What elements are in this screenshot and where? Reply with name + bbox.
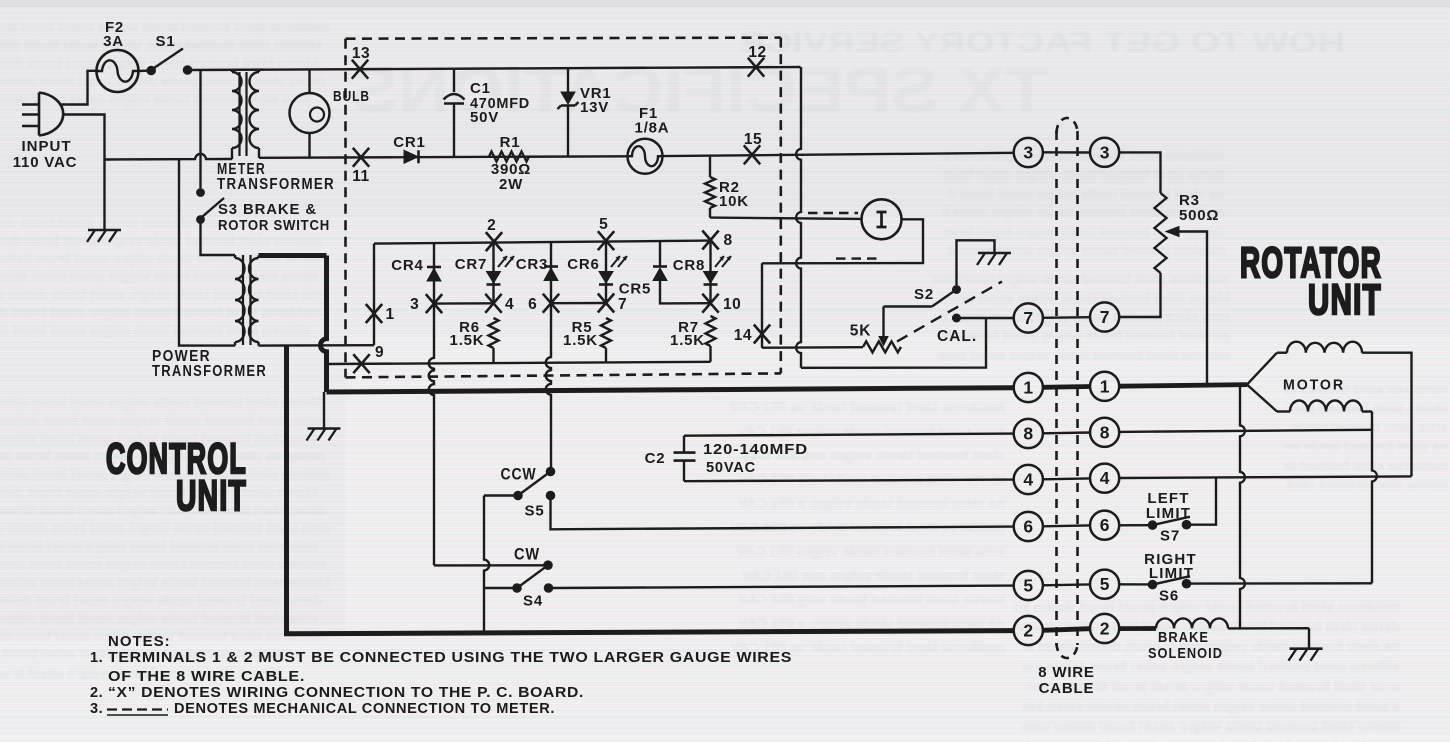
svg-text:a slent bromed tande velgro an: a slent bromed tande velgro anset brunt … bbox=[1023, 698, 1400, 714]
svg-text:CR3: CR3 bbox=[516, 256, 548, 273]
svg-text:8 WIRE: 8 WIRE bbox=[1038, 664, 1094, 681]
svg-text:UNIT: UNIT bbox=[1308, 276, 1382, 324]
svg-text:LIMIT: LIMIT bbox=[1149, 565, 1194, 582]
svg-text:6: 6 bbox=[1023, 517, 1033, 537]
svg-text:S6: S6 bbox=[1159, 588, 1179, 605]
svg-text:50VAC: 50VAC bbox=[706, 459, 756, 476]
svg-text:INPUT: INPUT bbox=[22, 138, 72, 155]
svg-text:erna slent bromed tande velgro: erna slent bromed tande velgro anset bru… bbox=[0, 611, 318, 626]
svg-text:erna slent bromed tande velgro: erna slent bromed tande velgro 051 CAV bbox=[736, 543, 1005, 559]
svg-text:melderna slent bromed tande ve: melderna slent bromed tande velgro anset… bbox=[0, 305, 322, 320]
svg-text:8: 8 bbox=[1100, 422, 1110, 442]
svg-text:CW: CW bbox=[514, 546, 540, 564]
svg-text:erna slent bromed tande velgro: erna slent bromed tande velgro 051 CAV bbox=[736, 423, 1005, 439]
svg-text:melderna slent bromed ta: melderna slent bromed ta bbox=[1283, 458, 1448, 473]
svg-text:CABLE: CABLE bbox=[1039, 680, 1095, 697]
svg-text:derna slent bromed tande velgr: derna slent bromed tande velgro anset br… bbox=[943, 167, 1225, 182]
svg-text:C2: C2 bbox=[645, 450, 666, 467]
svg-text:1.5K: 1.5K bbox=[563, 332, 598, 349]
svg-text:110 VAC: 110 VAC bbox=[13, 154, 78, 171]
svg-text:na slent bromed tande velgro a: na slent bromed tande velgro anset brunt… bbox=[947, 243, 1225, 258]
svg-text:derna slent bromed tande velgr: derna slent bromed tande velgro anset br… bbox=[0, 413, 330, 428]
svg-text:melderna slent bromed tande ve: melderna slent bromed tande velgro anset… bbox=[933, 272, 1230, 287]
svg-text:8: 8 bbox=[1023, 424, 1033, 444]
svg-text:CR6: CR6 bbox=[567, 256, 599, 273]
svg-text:14: 14 bbox=[734, 327, 752, 344]
svg-text:7: 7 bbox=[1100, 307, 1110, 327]
svg-text:1.5K: 1.5K bbox=[450, 332, 485, 349]
svg-text:CCW: CCW bbox=[501, 466, 537, 484]
svg-text:derna slent bromed tande velgr: derna slent bromed tande velgro anset br… bbox=[0, 503, 326, 518]
svg-text:DENOTES MECHANICAL CONNECTIO: DENOTES MECHANICAL CONNECTION TO METER. bbox=[174, 701, 555, 717]
svg-text:slent bromed tande velgro ans: slent bromed tande velgro ans 051 CAV bbox=[742, 567, 1005, 583]
svg-text:1: 1 bbox=[1023, 378, 1033, 398]
svg-text:4: 4 bbox=[1100, 468, 1110, 488]
svg-text:elderna slent bromed tande vel: elderna slent bromed tande velgro anset … bbox=[0, 233, 322, 248]
svg-text:na slent bromed tande velgro a: na slent bromed tande velgro anset brunt… bbox=[941, 329, 1230, 344]
svg-text:5: 5 bbox=[1023, 576, 1033, 596]
svg-text:3: 3 bbox=[1100, 142, 1110, 162]
svg-text:S3 BRAKE &: S3 BRAKE & bbox=[218, 201, 317, 218]
svg-text:9: 9 bbox=[375, 344, 385, 361]
svg-text:6: 6 bbox=[528, 296, 538, 313]
svg-text:2W: 2W bbox=[499, 176, 523, 193]
svg-text:2: 2 bbox=[1023, 621, 1033, 641]
svg-text:lderna slent bromed tand: lderna slent bromed tand bbox=[1287, 477, 1448, 492]
svg-text:NOTES:: NOTES: bbox=[108, 633, 171, 650]
svg-text:lderna slent bromed tande velg: lderna slent bromed tande velgro anset b… bbox=[0, 395, 322, 410]
svg-text:TX SPECIFICATIONS: TX SPECIFICATIONS bbox=[351, 54, 1048, 126]
svg-text:1: 1 bbox=[1100, 376, 1110, 396]
svg-text:S1: S1 bbox=[156, 33, 176, 50]
svg-text:rna slent bromed tande velgro: rna slent bromed tande velgro anset brun… bbox=[1021, 738, 1400, 742]
svg-text:melderna slent bromed tande ve: melderna slent bromed tande velgro anset… bbox=[941, 148, 1225, 163]
svg-text:derna slent bromed tande velgr: derna slent bromed tande velgro anset br… bbox=[0, 269, 318, 284]
svg-text:CR8: CR8 bbox=[673, 257, 705, 274]
svg-text:BULB: BULB bbox=[333, 88, 370, 105]
svg-text:melderna slent bromed tande ve: melderna slent bromed tande ve 051 CAV bbox=[730, 399, 1005, 415]
svg-text:CR7: CR7 bbox=[455, 256, 487, 273]
svg-text:elderna slent bromed tande vel: elderna slent bromed tande velgro anset … bbox=[0, 323, 310, 338]
svg-text:11: 11 bbox=[352, 168, 369, 185]
svg-text:4: 4 bbox=[505, 296, 515, 313]
svg-text:BRAKE: BRAKE bbox=[1158, 629, 1209, 646]
svg-text:7: 7 bbox=[618, 296, 628, 313]
svg-text:CR1: CR1 bbox=[393, 134, 425, 151]
svg-text:elderna slent bromed tande vel: elderna slent bromed tande velgro anset … bbox=[937, 348, 1230, 363]
svg-text:TRANSFORMER: TRANSFORMER bbox=[217, 176, 335, 193]
svg-text:S7: S7 bbox=[1160, 528, 1180, 545]
svg-text:4: 4 bbox=[1023, 470, 1033, 490]
svg-text:5: 5 bbox=[599, 216, 609, 233]
svg-text:MOTOR: MOTOR bbox=[1283, 377, 1345, 394]
svg-text:SOLENOID: SOLENOID bbox=[1148, 645, 1223, 662]
svg-text:2: 2 bbox=[487, 217, 497, 234]
svg-text:TERMINALS 1 & 2 MUST BE CO: TERMINALS 1 & 2 MUST BE CONNECTED USING … bbox=[108, 650, 792, 666]
svg-text:3A: 3A bbox=[103, 33, 124, 50]
svg-text:5: 5 bbox=[1100, 574, 1110, 594]
svg-text:CAL.: CAL. bbox=[937, 328, 977, 345]
svg-text:CR4: CR4 bbox=[391, 257, 423, 274]
svg-text:500Ω: 500Ω bbox=[1179, 207, 1219, 224]
svg-text:LIMIT: LIMIT bbox=[1146, 505, 1191, 522]
svg-text:7: 7 bbox=[1023, 308, 1033, 328]
svg-text:1.5K: 1.5K bbox=[670, 332, 705, 349]
svg-text:13: 13 bbox=[352, 45, 370, 62]
svg-text:erna slent bromed tande velgro: erna slent bromed tande velgro anset bru… bbox=[0, 521, 330, 536]
svg-text:melderna slent bromed tande ve: melderna slent bromed tande velgro anset… bbox=[0, 539, 318, 554]
svg-text:lderna slent bromed tande velg: lderna slent bromed tande velgro anset b… bbox=[1021, 718, 1400, 734]
svg-text:derna slent bromed tande velgr: derna slent bromed tande velgro anset br… bbox=[0, 74, 326, 89]
svg-text:CR5: CR5 bbox=[619, 281, 651, 298]
svg-text:TRANSFORMER: TRANSFORMER bbox=[152, 363, 267, 380]
svg-text:derna slent bromed tande velgr: derna slent bromed tande velgro anset br… bbox=[0, 593, 322, 608]
svg-text:S2: S2 bbox=[914, 286, 934, 303]
svg-text:“X” DENOTES WIRING CONNECTIO: “X” DENOTES WIRING CONNECTION TO THE P. … bbox=[108, 685, 584, 701]
svg-text:erna slent bromed tande velgro: erna slent bromed tande velgro anset bru… bbox=[0, 287, 330, 302]
svg-text:erna slent bromed tande: erna slent bromed tande bbox=[1291, 420, 1448, 435]
svg-text:OF THE 8 WIRE CABLE.: OF THE 8 WIRE CABLE. bbox=[108, 669, 305, 685]
svg-text:R1: R1 bbox=[500, 134, 521, 151]
svg-text:3.: 3. bbox=[90, 701, 103, 717]
svg-text:S5: S5 bbox=[525, 503, 545, 520]
svg-text:1/8A: 1/8A bbox=[635, 120, 670, 137]
svg-text:ROTOR SWITCH: ROTOR SWITCH bbox=[218, 217, 330, 234]
svg-text:2: 2 bbox=[1100, 619, 1110, 639]
svg-text:8: 8 bbox=[724, 232, 734, 249]
svg-text:120-140MFD: 120-140MFD bbox=[703, 441, 808, 458]
svg-text:2.: 2. bbox=[90, 685, 103, 701]
svg-text:1.: 1. bbox=[90, 650, 103, 666]
svg-text:lderna slent bromed tande velg: lderna slent bromed tande velgro anset b… bbox=[0, 575, 330, 590]
svg-text:na slent bromed tande ve: na slent bromed tande ve bbox=[1285, 439, 1448, 454]
svg-text:3: 3 bbox=[1023, 143, 1033, 163]
svg-text:melderna slent bromed tande ve: melderna slent bromed tande velgro anset… bbox=[1014, 598, 1400, 614]
svg-text:10: 10 bbox=[723, 296, 741, 313]
svg-text:3: 3 bbox=[410, 296, 420, 313]
svg-text:13V: 13V bbox=[580, 99, 609, 116]
svg-text:50V: 50V bbox=[470, 109, 499, 126]
svg-text:1: 1 bbox=[386, 306, 395, 323]
svg-text:lderna slent bromed tande velg: lderna slent bromed tande velgro anset b… bbox=[0, 485, 318, 500]
svg-text:5K: 5K bbox=[850, 323, 871, 340]
svg-text:10K: 10K bbox=[719, 193, 749, 210]
svg-text:na slent bromed tande velgro a: na slent bromed tande velgro a 051 CAV bbox=[738, 495, 1005, 511]
svg-text:S4: S4 bbox=[523, 593, 543, 610]
svg-text:6: 6 bbox=[1100, 515, 1110, 535]
svg-text:lderna slent bromed tande velg: lderna slent bromed tande velg 051 CAV bbox=[738, 591, 1005, 607]
svg-text:UNIT: UNIT bbox=[176, 472, 247, 520]
svg-text:elderna slent bromed tande vel: elderna slent bromed tande velgro anset … bbox=[0, 557, 326, 572]
svg-text:12: 12 bbox=[748, 44, 766, 61]
svg-text:15: 15 bbox=[744, 131, 762, 148]
